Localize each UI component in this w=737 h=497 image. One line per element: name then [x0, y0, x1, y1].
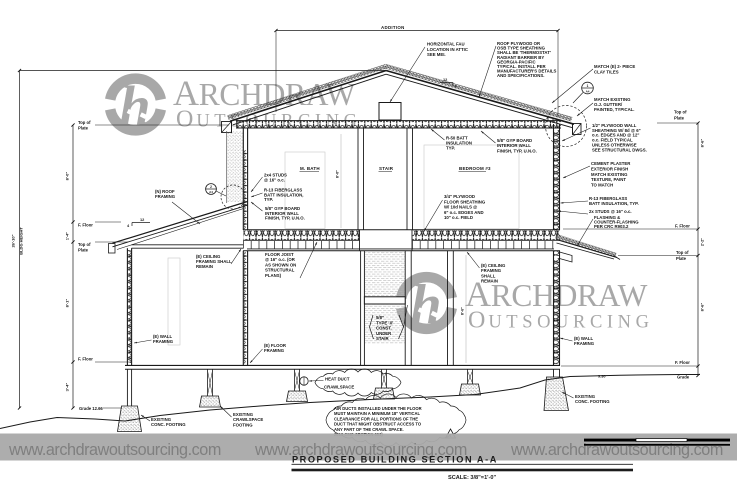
- svg-text:8'-0": 8'-0": [65, 172, 70, 181]
- svg-text:www.archdrawoutsourcing.com: www.archdrawoutsourcing.com: [8, 441, 221, 459]
- svg-text:BATT INSULATION, TYP.: BATT INSULATION, TYP.: [589, 201, 639, 206]
- svg-text:PROPOSED BUILDING SECTION A-A: PROPOSED BUILDING SECTION A-A: [292, 455, 498, 465]
- svg-text:8'-6": 8'-6": [700, 303, 705, 312]
- svg-text:EXTERIOR FINISH: EXTERIOR FINISH: [591, 166, 628, 171]
- svg-text:Plate: Plate: [78, 248, 89, 253]
- svg-text:TYP.: TYP.: [264, 197, 273, 202]
- svg-text:PER CRC R903.2: PER CRC R903.2: [594, 224, 629, 229]
- svg-text:STAIR: STAIR: [376, 336, 389, 341]
- svg-text:FINISH, TYP, U.N.O.: FINISH, TYP, U.N.O.: [497, 148, 537, 153]
- svg-text:BLDG HEIGHT: BLDG HEIGHT: [19, 227, 24, 255]
- svg-text:HORIZONTAL FAU: HORIZONTAL FAU: [427, 42, 465, 47]
- svg-text:FOOTING: FOOTING: [233, 422, 253, 427]
- svg-text:TYPE 'X': TYPE 'X': [376, 320, 393, 325]
- svg-text:10" o.c. FIELD: 10" o.c. FIELD: [444, 215, 473, 220]
- svg-text:8'-0": 8'-0": [336, 170, 340, 178]
- svg-text:F. Floor: F. Floor: [675, 224, 690, 229]
- svg-text:F. Floor: F. Floor: [78, 357, 93, 362]
- svg-text:6" o.c. EDGES AND: 6" o.c. EDGES AND: [444, 210, 484, 215]
- svg-text:A4: A4: [586, 90, 590, 94]
- svg-text:FRAMING: FRAMING: [155, 194, 176, 199]
- svg-text:Top of: Top of: [676, 250, 689, 255]
- svg-text:Plate: Plate: [676, 256, 687, 261]
- svg-text:Plate: Plate: [78, 126, 89, 131]
- svg-text:PAINTED, TYPICAL.: PAINTED, TYPICAL.: [594, 107, 635, 112]
- svg-text:FRAMING: FRAMING: [574, 341, 595, 346]
- svg-text:Grade 12.66: Grade 12.66: [79, 406, 103, 411]
- svg-text:UNDER: UNDER: [376, 331, 392, 336]
- svg-text:REMAIN: REMAIN: [196, 264, 213, 269]
- svg-text:Top of: Top of: [674, 110, 687, 115]
- svg-text:FRAMING: FRAMING: [264, 348, 285, 353]
- svg-text:Grade: Grade: [677, 375, 690, 380]
- svg-text:www.archdrawoutsourcing.com: www.archdrawoutsourcing.com: [510, 441, 723, 459]
- svg-text:STAIR: STAIR: [379, 166, 394, 171]
- svg-text:1: 1: [587, 84, 589, 88]
- svg-text:CONC. FOOTING: CONC. FOOTING: [575, 399, 610, 404]
- svg-text:h: h: [411, 274, 442, 336]
- svg-text:CONC. FOOTING: CONC. FOOTING: [151, 422, 186, 427]
- svg-text:TYP.: TYP.: [446, 146, 455, 151]
- svg-text:HEAT DUCT: HEAT DUCT: [325, 377, 350, 382]
- svg-text:9.30: 9.30: [598, 374, 606, 379]
- svg-text:MATCH (E) 2- PIECE: MATCH (E) 2- PIECE: [594, 64, 635, 69]
- svg-text:CLAY TILES: CLAY TILES: [594, 70, 619, 75]
- svg-text:LOCATION IN ATTIC: LOCATION IN ATTIC: [427, 47, 468, 52]
- svg-text:TO MATCH: TO MATCH: [591, 183, 613, 188]
- svg-text:FLOOR SHEATHING: FLOOR SHEATHING: [444, 199, 486, 204]
- svg-text:MATCH EXISTING: MATCH EXISTING: [591, 172, 628, 177]
- svg-text:2x STUDS @ 16" o.c.: 2x STUDS @ 16" o.c.: [589, 209, 632, 214]
- svg-text:SEE MEI.: SEE MEI.: [427, 52, 446, 57]
- svg-text:A4: A4: [209, 190, 213, 194]
- svg-text:FINISH, TYP, U.N.O.: FINISH, TYP, U.N.O.: [265, 216, 305, 221]
- svg-text:CEMENT PLASTER: CEMENT PLASTER: [591, 161, 631, 166]
- svg-text:2: 2: [210, 185, 212, 189]
- svg-text:PLANS): PLANS): [265, 273, 282, 278]
- svg-text:26'-10": 26'-10": [11, 234, 16, 247]
- svg-text:F. Floor: F. Floor: [78, 223, 93, 228]
- svg-text:BEDROOM #3: BEDROOM #3: [459, 166, 491, 171]
- svg-text:TEXTURE, PAINT: TEXTURE, PAINT: [591, 177, 626, 182]
- svg-text:8'-1": 8'-1": [65, 299, 70, 308]
- svg-text:3/4" PLYWOOD: 3/4" PLYWOOD: [444, 194, 475, 199]
- svg-text:FRAMING: FRAMING: [153, 339, 174, 344]
- svg-text:W/ 10d NAILS @: W/ 10d NAILS @: [444, 205, 477, 210]
- svg-text:SCALE: 3/8"=1'-0": SCALE: 3/8"=1'-0": [448, 475, 496, 481]
- svg-text:8'-6": 8'-6": [461, 307, 465, 315]
- svg-text:F. Floor: F. Floor: [675, 360, 690, 365]
- svg-text:8'-6": 8'-6": [700, 139, 705, 148]
- svg-text:3'-4": 3'-4": [65, 383, 70, 392]
- svg-text:AND SPECIFICATIONS.: AND SPECIFICATIONS.: [497, 73, 544, 78]
- svg-text:2'-2": 2'-2": [701, 238, 705, 246]
- svg-text:5/8": 5/8": [376, 315, 384, 320]
- svg-text:REMAIN: REMAIN: [481, 279, 498, 284]
- svg-text:ADDITION: ADDITION: [381, 25, 405, 30]
- svg-text:Plate: Plate: [674, 116, 685, 121]
- svg-text:CRAWLSPACE: CRAWLSPACE: [324, 385, 354, 390]
- svg-text:h: h: [120, 76, 151, 138]
- svg-text:Top of: Top of: [78, 242, 91, 247]
- svg-text:M. BATH: M. BATH: [300, 166, 320, 171]
- svg-text:CONST.: CONST.: [376, 326, 392, 331]
- svg-text:SEE STRUCTURAL DWGS.: SEE STRUCTURAL DWGS.: [592, 147, 647, 152]
- svg-text:1'-4": 1'-4": [66, 232, 70, 240]
- svg-text:Top of: Top of: [78, 120, 91, 125]
- svg-text:@ 16" o.c.: @ 16" o.c.: [264, 177, 285, 182]
